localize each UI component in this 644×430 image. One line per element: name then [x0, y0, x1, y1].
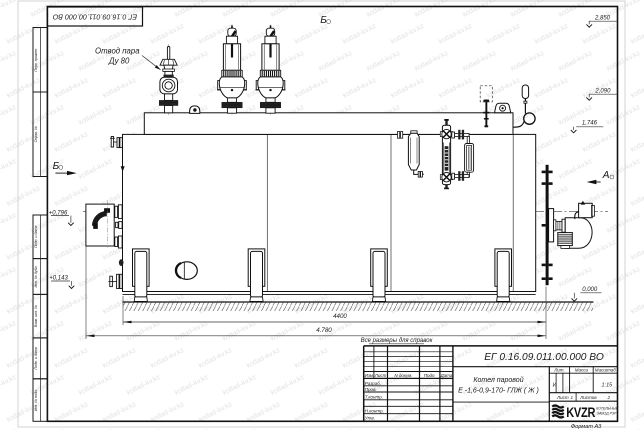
svg-text:КОТЕЛЬНЫЙ: КОТЕЛЬНЫЙ: [596, 406, 619, 410]
svg-text:1,746: 1,746: [582, 120, 598, 126]
svg-text:Подп. и дата: Подп. и дата: [34, 226, 38, 249]
svg-text:Масса: Масса: [575, 368, 589, 373]
svg-text:Е -1,6-0,9-170- ГЛЖ ( Ж ): Е -1,6-0,9-170- ГЛЖ ( Ж ): [458, 387, 539, 394]
svg-text:Н.контр.: Н.контр.: [365, 409, 384, 414]
svg-text:ЗАВОД РЗР: ЗАВОД РЗР: [597, 411, 617, 415]
svg-text:Б: Б: [320, 15, 327, 26]
svg-text:2: 2: [607, 395, 611, 400]
svg-text:Утв.: Утв.: [365, 415, 375, 420]
svg-text:И: И: [553, 382, 557, 388]
svg-text:ЕГ 0.16.09.011.00.000 ВО: ЕГ 0.16.09.011.00.000 ВО: [52, 13, 137, 22]
svg-text:4400: 4400: [333, 313, 347, 320]
svg-text:N докум.: N докум.: [394, 373, 412, 378]
svg-text:0,000: 0,000: [582, 287, 598, 293]
svg-text:2,090: 2,090: [594, 88, 611, 94]
svg-text:Ду 80: Ду 80: [108, 57, 130, 66]
svg-text:Инв. № дубл.: Инв. № дубл.: [34, 265, 38, 287]
svg-text:Лист: Лист: [374, 373, 387, 378]
svg-text:Взам. инв. №: Взам. инв. №: [34, 305, 38, 327]
svg-text:KVZR: KVZR: [566, 405, 595, 420]
svg-text:Пров.: Пров.: [365, 387, 377, 392]
svg-text:Разраб.: Разраб.: [365, 381, 381, 386]
svg-text:Масштаб: Масштаб: [595, 368, 616, 373]
svg-text:Дата: Дата: [439, 373, 452, 378]
svg-text:1:15: 1:15: [602, 382, 614, 388]
svg-text:Лист: Лист: [556, 395, 569, 400]
svg-text:Б: Б: [53, 161, 60, 172]
svg-text:Инв. № подл.: Инв. № подл.: [34, 389, 38, 411]
svg-text:Лит.: Лит.: [553, 368, 565, 373]
svg-text:Листов: Листов: [579, 395, 597, 400]
svg-text:Подп.: Подп.: [424, 373, 436, 378]
svg-text:4.780: 4.780: [316, 327, 332, 334]
svg-text:Формат А3: Формат А3: [571, 424, 602, 430]
svg-text:Отвод пара: Отвод пара: [95, 47, 140, 56]
svg-text:Котел паровой: Котел паровой: [473, 376, 523, 384]
svg-text:2,850: 2,850: [594, 16, 611, 22]
svg-text:Т.контр.: Т.контр.: [365, 395, 383, 400]
svg-text:Изм.: Изм.: [365, 373, 375, 378]
svg-text:Перв. примен.: Перв. примен.: [34, 48, 38, 72]
svg-text:Все размеры для справок: Все размеры для справок: [361, 338, 434, 344]
svg-text:Справ. №: Справ. №: [34, 126, 38, 142]
svg-text:Подп. и дата: Подп. и дата: [34, 347, 38, 370]
svg-text:ЕГ 0.16.09.011.00.000 ВО: ЕГ 0.16.09.011.00.000 ВО: [484, 352, 604, 363]
svg-text:А: А: [602, 170, 610, 181]
